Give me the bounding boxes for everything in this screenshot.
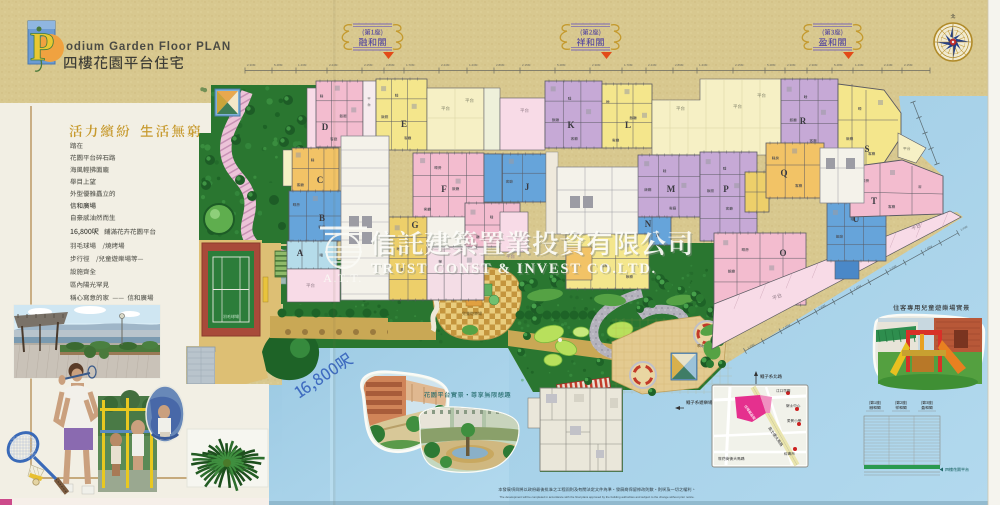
svg-text:G: G [411,220,418,230]
svg-text:1.43M: 1.43M [855,63,864,67]
svg-text:5.48M: 5.48M [557,63,566,67]
svg-text:L: L [625,120,631,130]
svg-text:2.30M: 2.30M [592,63,601,67]
svg-text:2.89M: 2.89M [386,63,395,67]
svg-text:2.30M: 2.30M [809,63,818,67]
svg-text:1.70M: 1.70M [624,63,633,67]
svg-text:C: C [317,175,324,185]
svg-text:2.44M: 2.44M [884,63,893,67]
svg-text:O: O [779,248,786,258]
svg-text:2.89M: 2.89M [675,63,684,67]
svg-text:R: R [800,116,807,126]
svg-text:B: B [319,213,325,223]
svg-text:Q: Q [780,168,787,178]
svg-text:TRUST CONST & INVEST CO.LTD.: TRUST CONST & INVEST CO.LTD. [371,261,657,277]
svg-text:P: P [723,184,729,194]
svg-text:A.T.T.: A.T.T. [323,271,363,285]
svg-text:2.15M: 2.15M [904,63,913,67]
svg-text:J: J [525,182,530,192]
svg-text:D: D [322,122,329,132]
svg-text:5.48M: 5.48M [274,63,283,67]
svg-text:A: A [297,248,304,258]
svg-text:N: N [645,219,652,229]
svg-text:2.15M: 2.15M [735,63,744,67]
svg-text:The development will be comple: The development will be completed in acc… [500,495,695,499]
svg-text:P: P [30,24,54,69]
svg-text:1.43M: 1.43M [699,63,708,67]
svg-text:2.15M: 2.15M [522,63,531,67]
svg-text:S: S [864,144,869,154]
svg-text:1.43M: 1.43M [469,63,478,67]
svg-text:2.44M: 2.44M [441,63,450,67]
svg-text:2.30M: 2.30M [247,63,256,67]
svg-text:2.89M: 2.89M [496,63,505,67]
svg-text:odium Garden Floor PLAN: odium Garden Floor PLAN [66,41,231,53]
svg-text:K: K [567,120,574,130]
svg-text:T: T [871,196,877,206]
svg-text:5.48M: 5.48M [767,63,776,67]
svg-text:E: E [401,119,407,129]
svg-text:F: F [441,184,447,194]
svg-text:2.44M: 2.44M [648,63,657,67]
svg-text:1.43M: 1.43M [298,63,307,67]
svg-text:2.30M: 2.30M [787,63,796,67]
svg-text:2.15M: 2.15M [364,63,373,67]
svg-text:1.70M: 1.70M [406,63,415,67]
svg-text:5.48M: 5.48M [834,63,843,67]
svg-text:M: M [667,184,676,194]
